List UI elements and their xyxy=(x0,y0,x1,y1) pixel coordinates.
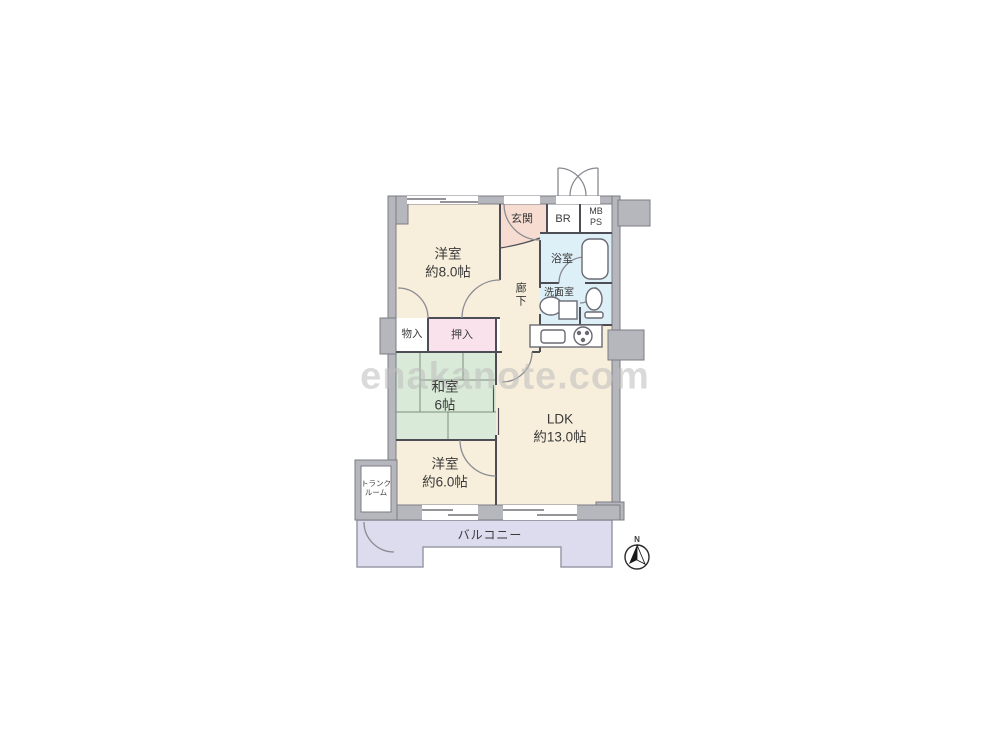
watermark: enakanote.com xyxy=(360,356,650,399)
kitchen-sink-icon xyxy=(541,330,565,343)
japanese6-size: 6帖 xyxy=(432,396,459,414)
utility-double-door-right xyxy=(570,168,598,196)
stove-icon xyxy=(574,327,592,345)
trunk-line1: トランク xyxy=(361,479,391,488)
compass-icon xyxy=(625,545,649,569)
label-entrance: 玄関 xyxy=(511,212,533,226)
bathtub-icon xyxy=(582,239,608,279)
toilet-base xyxy=(585,312,603,318)
label-trunk: トランク ルーム xyxy=(361,479,391,497)
compass-north-label: N xyxy=(634,535,640,545)
western8-name: 洋室 xyxy=(425,245,471,263)
western8-size: 約8.0帖 xyxy=(425,263,471,281)
label-washroom: 洗面室 xyxy=(544,287,574,300)
trunk-line2: ルーム xyxy=(361,488,391,497)
label-storage: 物入 xyxy=(402,328,423,342)
washing-machine-icon xyxy=(559,301,577,319)
label-bath: 浴室 xyxy=(551,252,573,266)
label-meterbox: MB PS xyxy=(589,206,603,228)
label-balcony: バルコニー xyxy=(458,528,523,544)
utility-double-door-left xyxy=(558,168,586,196)
label-ldk: LDK 約13.0帖 xyxy=(533,410,586,445)
label-western8: 洋室 約8.0帖 xyxy=(425,245,471,280)
toilet-icon xyxy=(586,288,602,310)
label-br: BR xyxy=(555,212,570,226)
label-japanese6: 和室 6帖 xyxy=(432,378,459,413)
meterbox-line2: PS xyxy=(589,217,603,228)
ldk-name: LDK xyxy=(533,410,586,428)
label-western6: 洋室 約6.0帖 xyxy=(422,455,468,490)
western6-size: 約6.0帖 xyxy=(422,473,468,491)
japanese6-name: 和室 xyxy=(432,378,459,396)
western6-name: 洋室 xyxy=(422,455,468,473)
meterbox-line1: MB xyxy=(589,206,603,217)
label-corridor: 廊下 xyxy=(513,282,527,308)
floorplan-page: enakanote.com 洋室 約8.0帖 玄関 廊下 BR MB PS 浴室… xyxy=(0,0,1000,750)
ldk-size: 約13.0帖 xyxy=(533,428,586,446)
label-closet: 押入 xyxy=(451,328,473,342)
